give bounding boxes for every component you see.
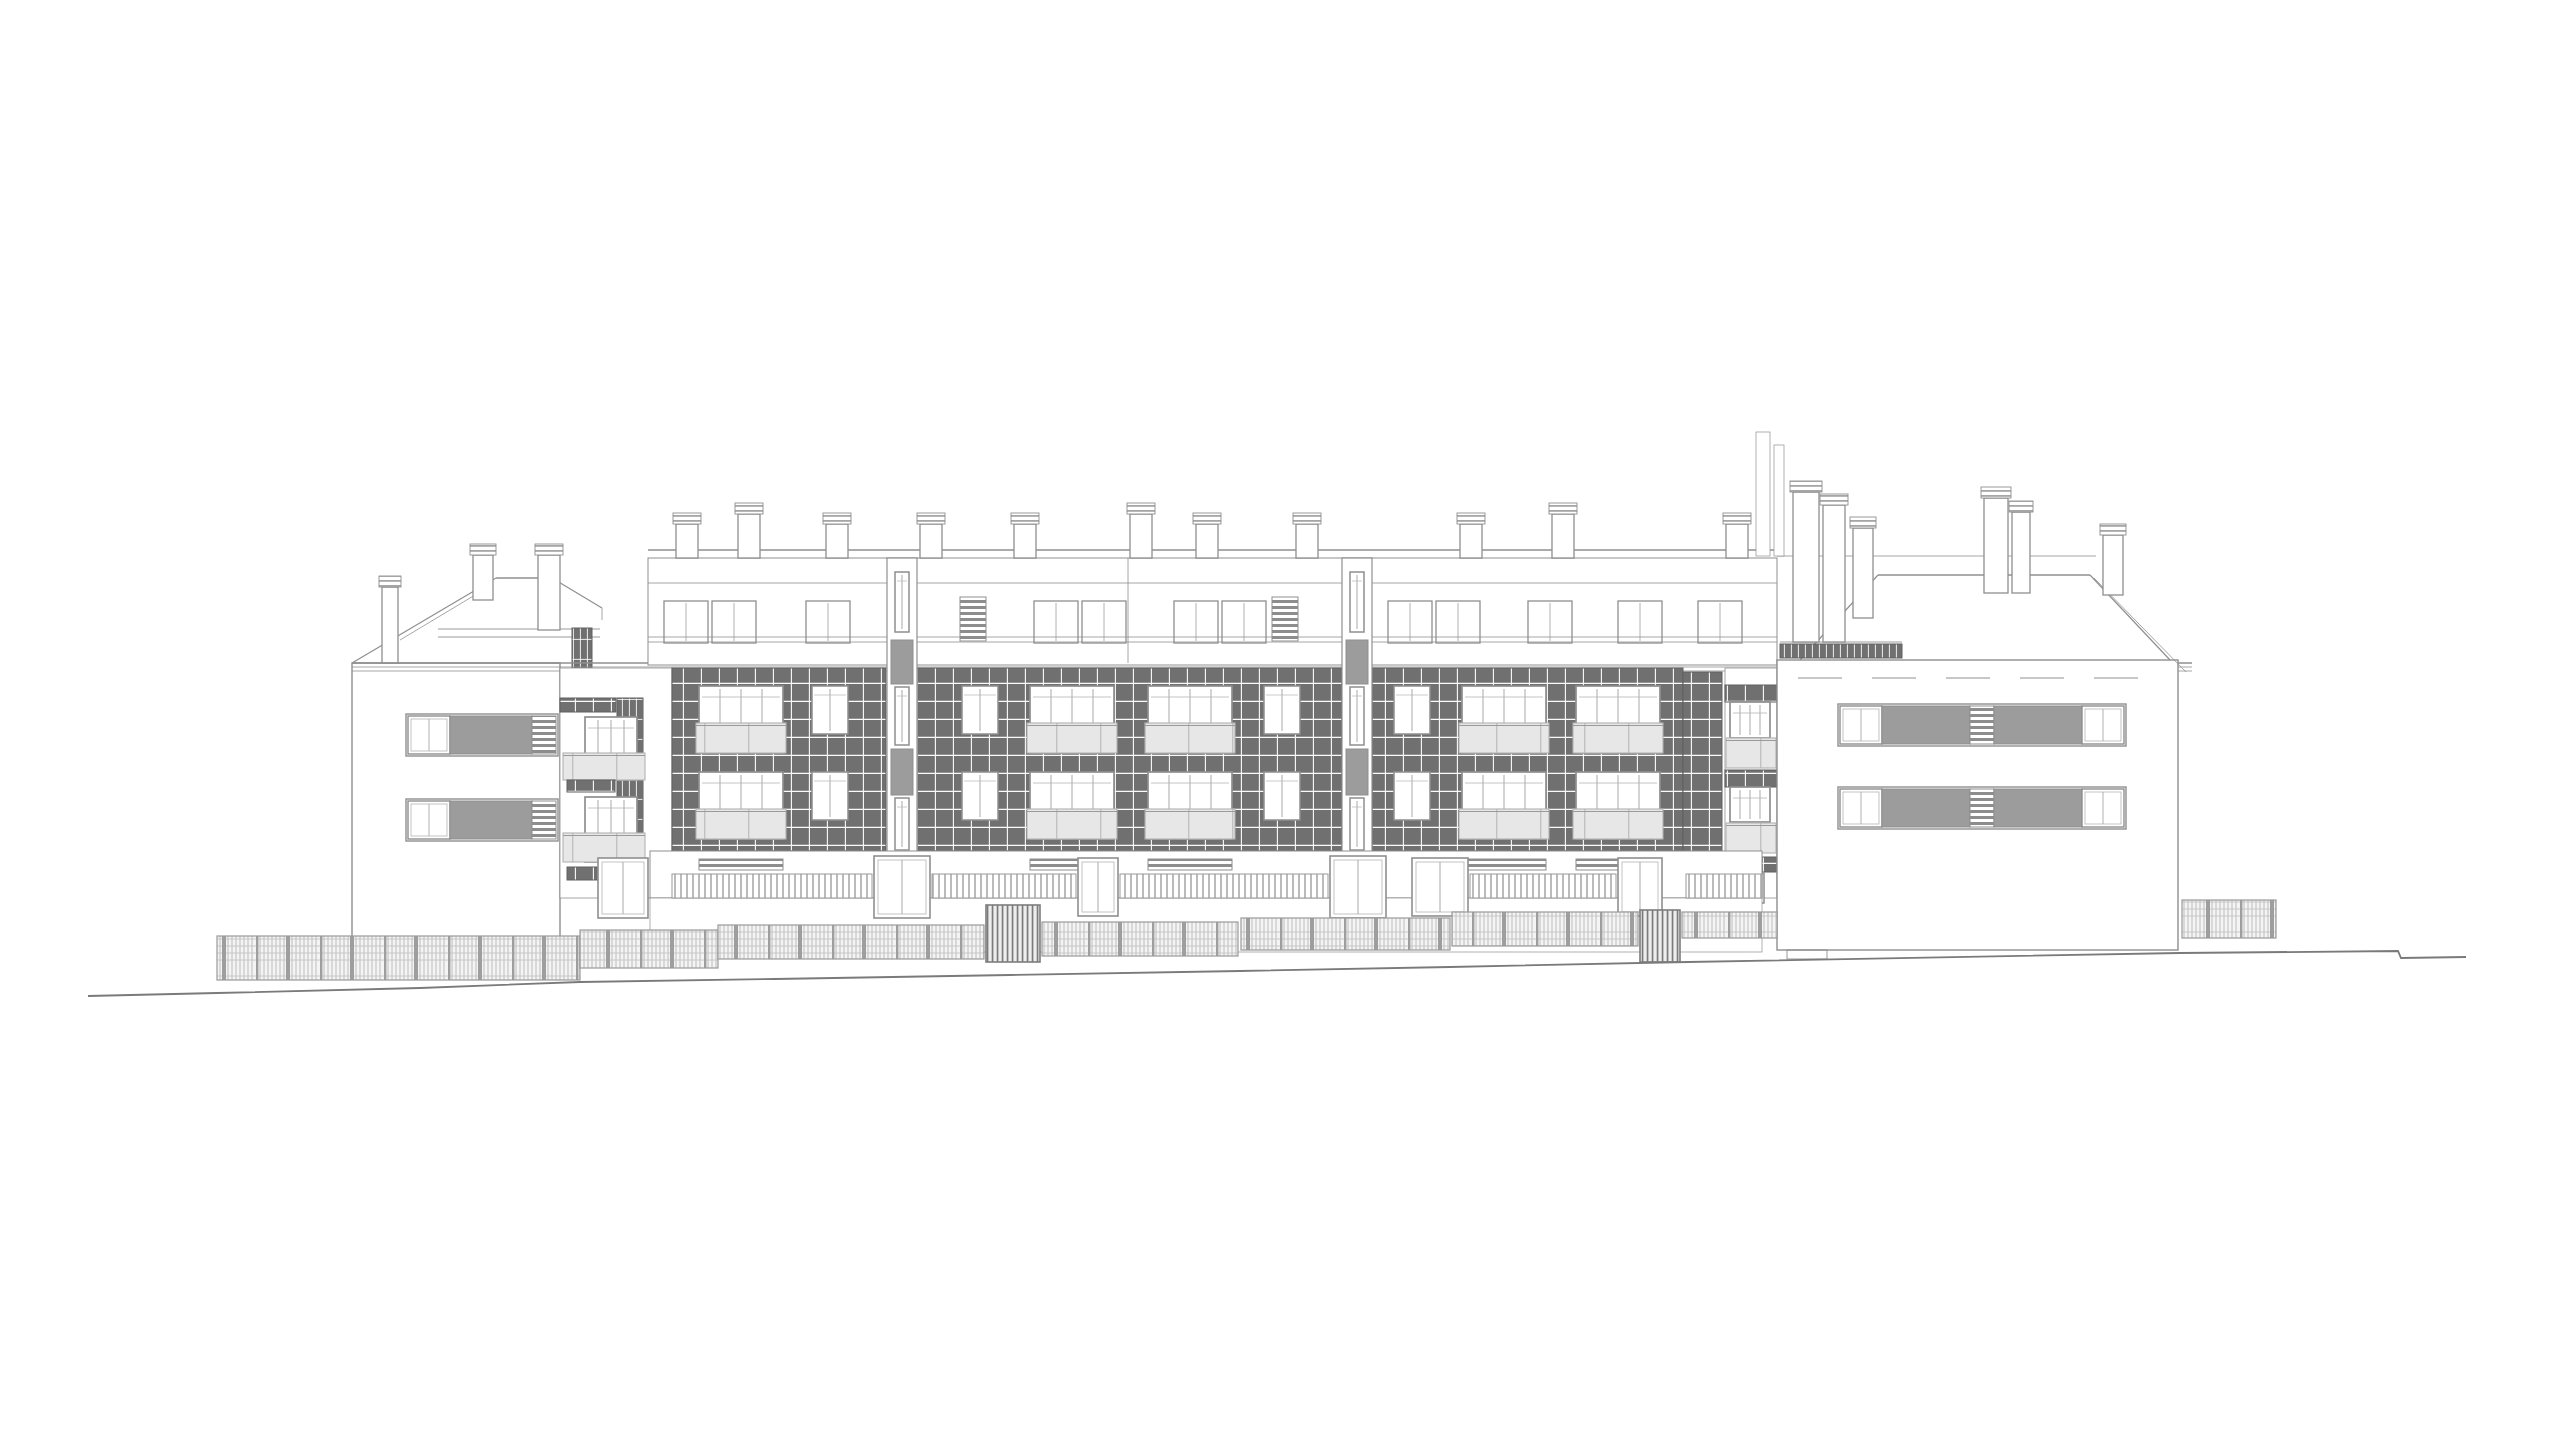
corner-tile-band	[1725, 685, 1777, 702]
balcony-tile-band	[560, 698, 616, 712]
chimney-cap	[673, 513, 701, 524]
chimney-cap	[735, 503, 763, 514]
planter-box	[699, 859, 783, 870]
chimney	[1130, 514, 1152, 558]
corner-glazing	[1726, 823, 1776, 853]
right-deck-railing-posts	[1780, 644, 1902, 658]
vent-stack	[1756, 432, 1770, 556]
band-panel	[450, 801, 532, 839]
chimney	[1460, 524, 1482, 558]
corner-glazing	[1726, 738, 1776, 768]
chimney	[1823, 505, 1845, 642]
chimney-cap	[2100, 524, 2126, 535]
chimney	[1726, 524, 1748, 558]
site-fence	[580, 930, 718, 968]
terrace-railing	[1470, 874, 1616, 898]
balcony-tile-band	[567, 780, 615, 792]
chimney	[1196, 524, 1218, 558]
chimney-cap	[2009, 501, 2033, 512]
planter-box	[1148, 859, 1232, 870]
band-louver	[532, 801, 556, 839]
right-roof-hip-right	[2090, 575, 2170, 660]
chimney	[826, 524, 848, 558]
chimney	[676, 524, 698, 558]
corner-pier	[1683, 672, 1722, 857]
balcony-railing	[1459, 723, 1549, 753]
site-fence	[1452, 912, 1638, 946]
chimney	[1296, 524, 1318, 558]
chimney	[1014, 524, 1036, 558]
terrace-railing	[1120, 874, 1328, 898]
wall-vent	[1787, 950, 1827, 959]
chimney-cap	[1193, 513, 1221, 524]
site-fence	[1241, 918, 1450, 950]
balcony-railing	[1027, 723, 1117, 753]
band-panel	[1994, 789, 2082, 827]
chimney	[382, 587, 398, 663]
chimney	[473, 555, 493, 600]
band-louver	[532, 716, 556, 754]
balcony-railing	[1459, 809, 1549, 839]
chimney-cap	[917, 513, 945, 524]
chimney-cap	[470, 544, 496, 555]
site-gate	[986, 905, 1040, 962]
site-fence	[2182, 900, 2276, 938]
chimney-cap	[1981, 487, 2011, 498]
site-fence	[1682, 912, 1777, 938]
chimney-cap	[1457, 513, 1485, 524]
chimney-cap	[1850, 517, 1876, 528]
site-fence	[718, 925, 984, 959]
terrace-railing	[1686, 874, 1762, 898]
band-panel	[450, 716, 532, 754]
balcony-railing	[1145, 723, 1235, 753]
balcony-railing	[1573, 723, 1663, 753]
chimney	[1552, 514, 1574, 558]
band-louver	[1970, 789, 1994, 827]
chimney	[738, 514, 760, 558]
terrace-railing	[932, 874, 1076, 898]
site-fence	[1042, 922, 1238, 956]
chimney-cap	[379, 576, 401, 587]
terrace-railing	[672, 874, 872, 898]
chimney-cap	[1127, 503, 1155, 514]
roof-access-ladder	[572, 628, 592, 668]
site-gate	[1640, 910, 1680, 962]
site-fence	[217, 936, 580, 980]
balcony-railing	[696, 723, 786, 753]
chimney-cap	[1293, 513, 1321, 524]
band-panel	[1882, 706, 1970, 744]
chimney-cap	[1549, 503, 1577, 514]
chimney-cap	[823, 513, 851, 524]
chimney	[2012, 512, 2030, 593]
chimney	[920, 524, 942, 558]
chimney	[1853, 528, 1873, 618]
chimney	[2103, 535, 2123, 595]
stair-panel	[1346, 749, 1368, 795]
band-panel	[1994, 706, 2082, 744]
corner-tile-band	[1725, 770, 1777, 787]
chimney-cap	[1011, 513, 1039, 524]
balcony-railing	[1027, 809, 1117, 839]
chimney-cap	[535, 544, 563, 555]
chimney-cap	[1723, 513, 1751, 524]
elevation-drawing: Residential building street elevation dr…	[0, 0, 2560, 1440]
chimney	[1984, 498, 2008, 593]
balcony-railing	[1573, 809, 1663, 839]
balcony-railing	[1145, 809, 1235, 839]
vent-stack	[1774, 445, 1784, 556]
chimney-cap	[1790, 481, 1822, 492]
planter-box	[1462, 859, 1546, 870]
chimney	[538, 555, 560, 630]
chimney-cap	[1820, 494, 1848, 505]
stair-panel	[891, 749, 913, 795]
band-panel	[1882, 789, 1970, 827]
attic-louver	[1272, 597, 1298, 641]
balcony-railing	[696, 809, 786, 839]
stair-panel	[891, 640, 913, 684]
attic-louver	[960, 597, 986, 641]
band-louver	[1970, 706, 1994, 744]
balcony-railing	[563, 753, 645, 780]
stair-panel	[1346, 640, 1368, 684]
chimney	[1793, 492, 1819, 642]
